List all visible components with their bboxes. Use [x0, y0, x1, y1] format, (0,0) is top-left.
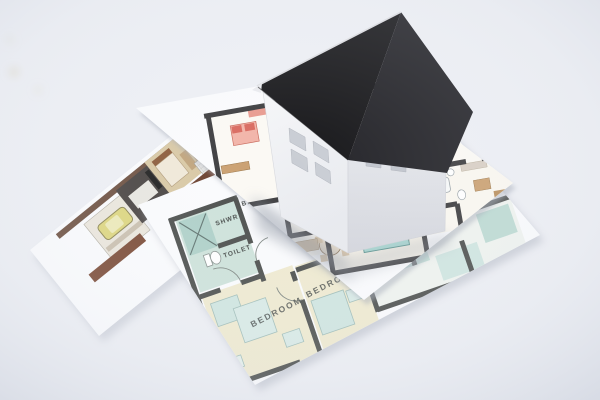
vignette-overlay — [0, 0, 600, 400]
photo-scene: SHWR BA TOILET BEDROOM BEDROOM — [0, 0, 600, 400]
scene-canvas: SHWR BA TOILET BEDROOM BEDROOM — [0, 0, 600, 400]
